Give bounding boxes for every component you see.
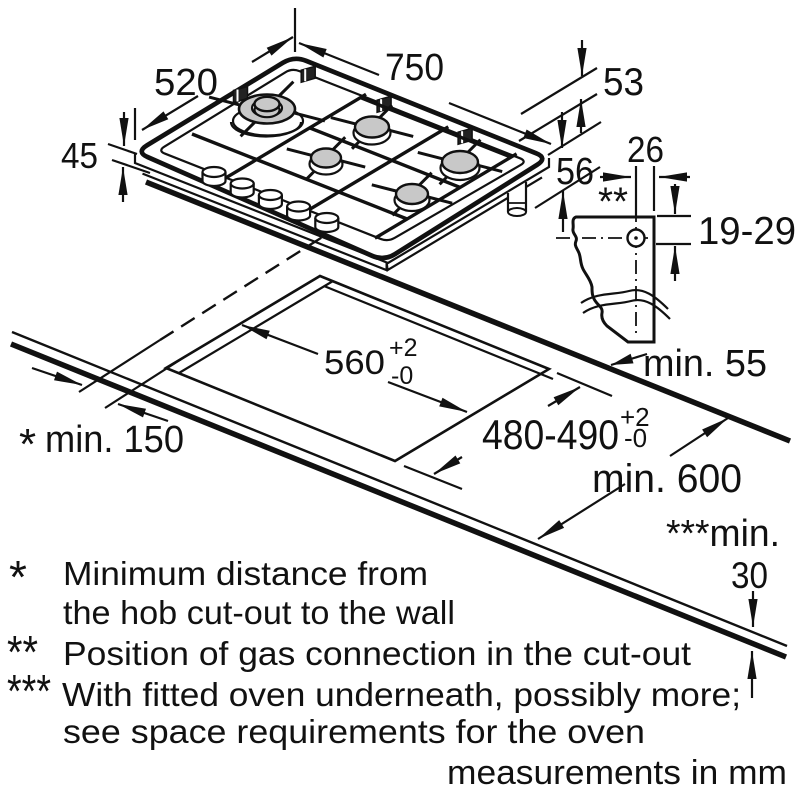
svg-text:26: 26 (627, 129, 664, 170)
svg-text:56: 56 (556, 151, 594, 193)
svg-text:480-490: 480-490 (482, 411, 619, 458)
svg-text:With fitted oven underneath, p: With fitted oven underneath, possibly mo… (62, 676, 741, 713)
svg-text:*: * (19, 420, 36, 469)
svg-text:min. 600: min. 600 (592, 457, 742, 501)
svg-text:min. 55: min. 55 (643, 343, 767, 385)
svg-text:***: *** (7, 665, 51, 717)
svg-text:Position of gas connection in: Position of gas connection in the cut-ou… (63, 635, 691, 672)
svg-text:45: 45 (61, 135, 98, 176)
svg-text:the hob cut-out to the wall: the hob cut-out to the wall (63, 594, 455, 631)
svg-text:min. 150: min. 150 (45, 419, 184, 461)
svg-text:30: 30 (731, 555, 768, 596)
svg-text:**: ** (598, 180, 628, 224)
svg-text:Minimum distance from: Minimum distance from (63, 555, 428, 592)
svg-text:19-29: 19-29 (698, 210, 796, 253)
svg-text:53: 53 (603, 61, 644, 104)
svg-text:-0: -0 (391, 362, 413, 390)
svg-text:560: 560 (324, 344, 385, 382)
svg-text:***min.: ***min. (666, 513, 780, 555)
svg-text:*: * (9, 551, 27, 603)
svg-text:measurements in mm: measurements in mm (447, 754, 787, 792)
svg-text:+2: +2 (389, 334, 418, 362)
svg-text:750: 750 (385, 47, 444, 89)
svg-text:see space requirements for the: see space requirements for the oven (63, 713, 645, 750)
svg-text:-0: -0 (624, 423, 647, 453)
svg-text:520: 520 (154, 62, 218, 104)
